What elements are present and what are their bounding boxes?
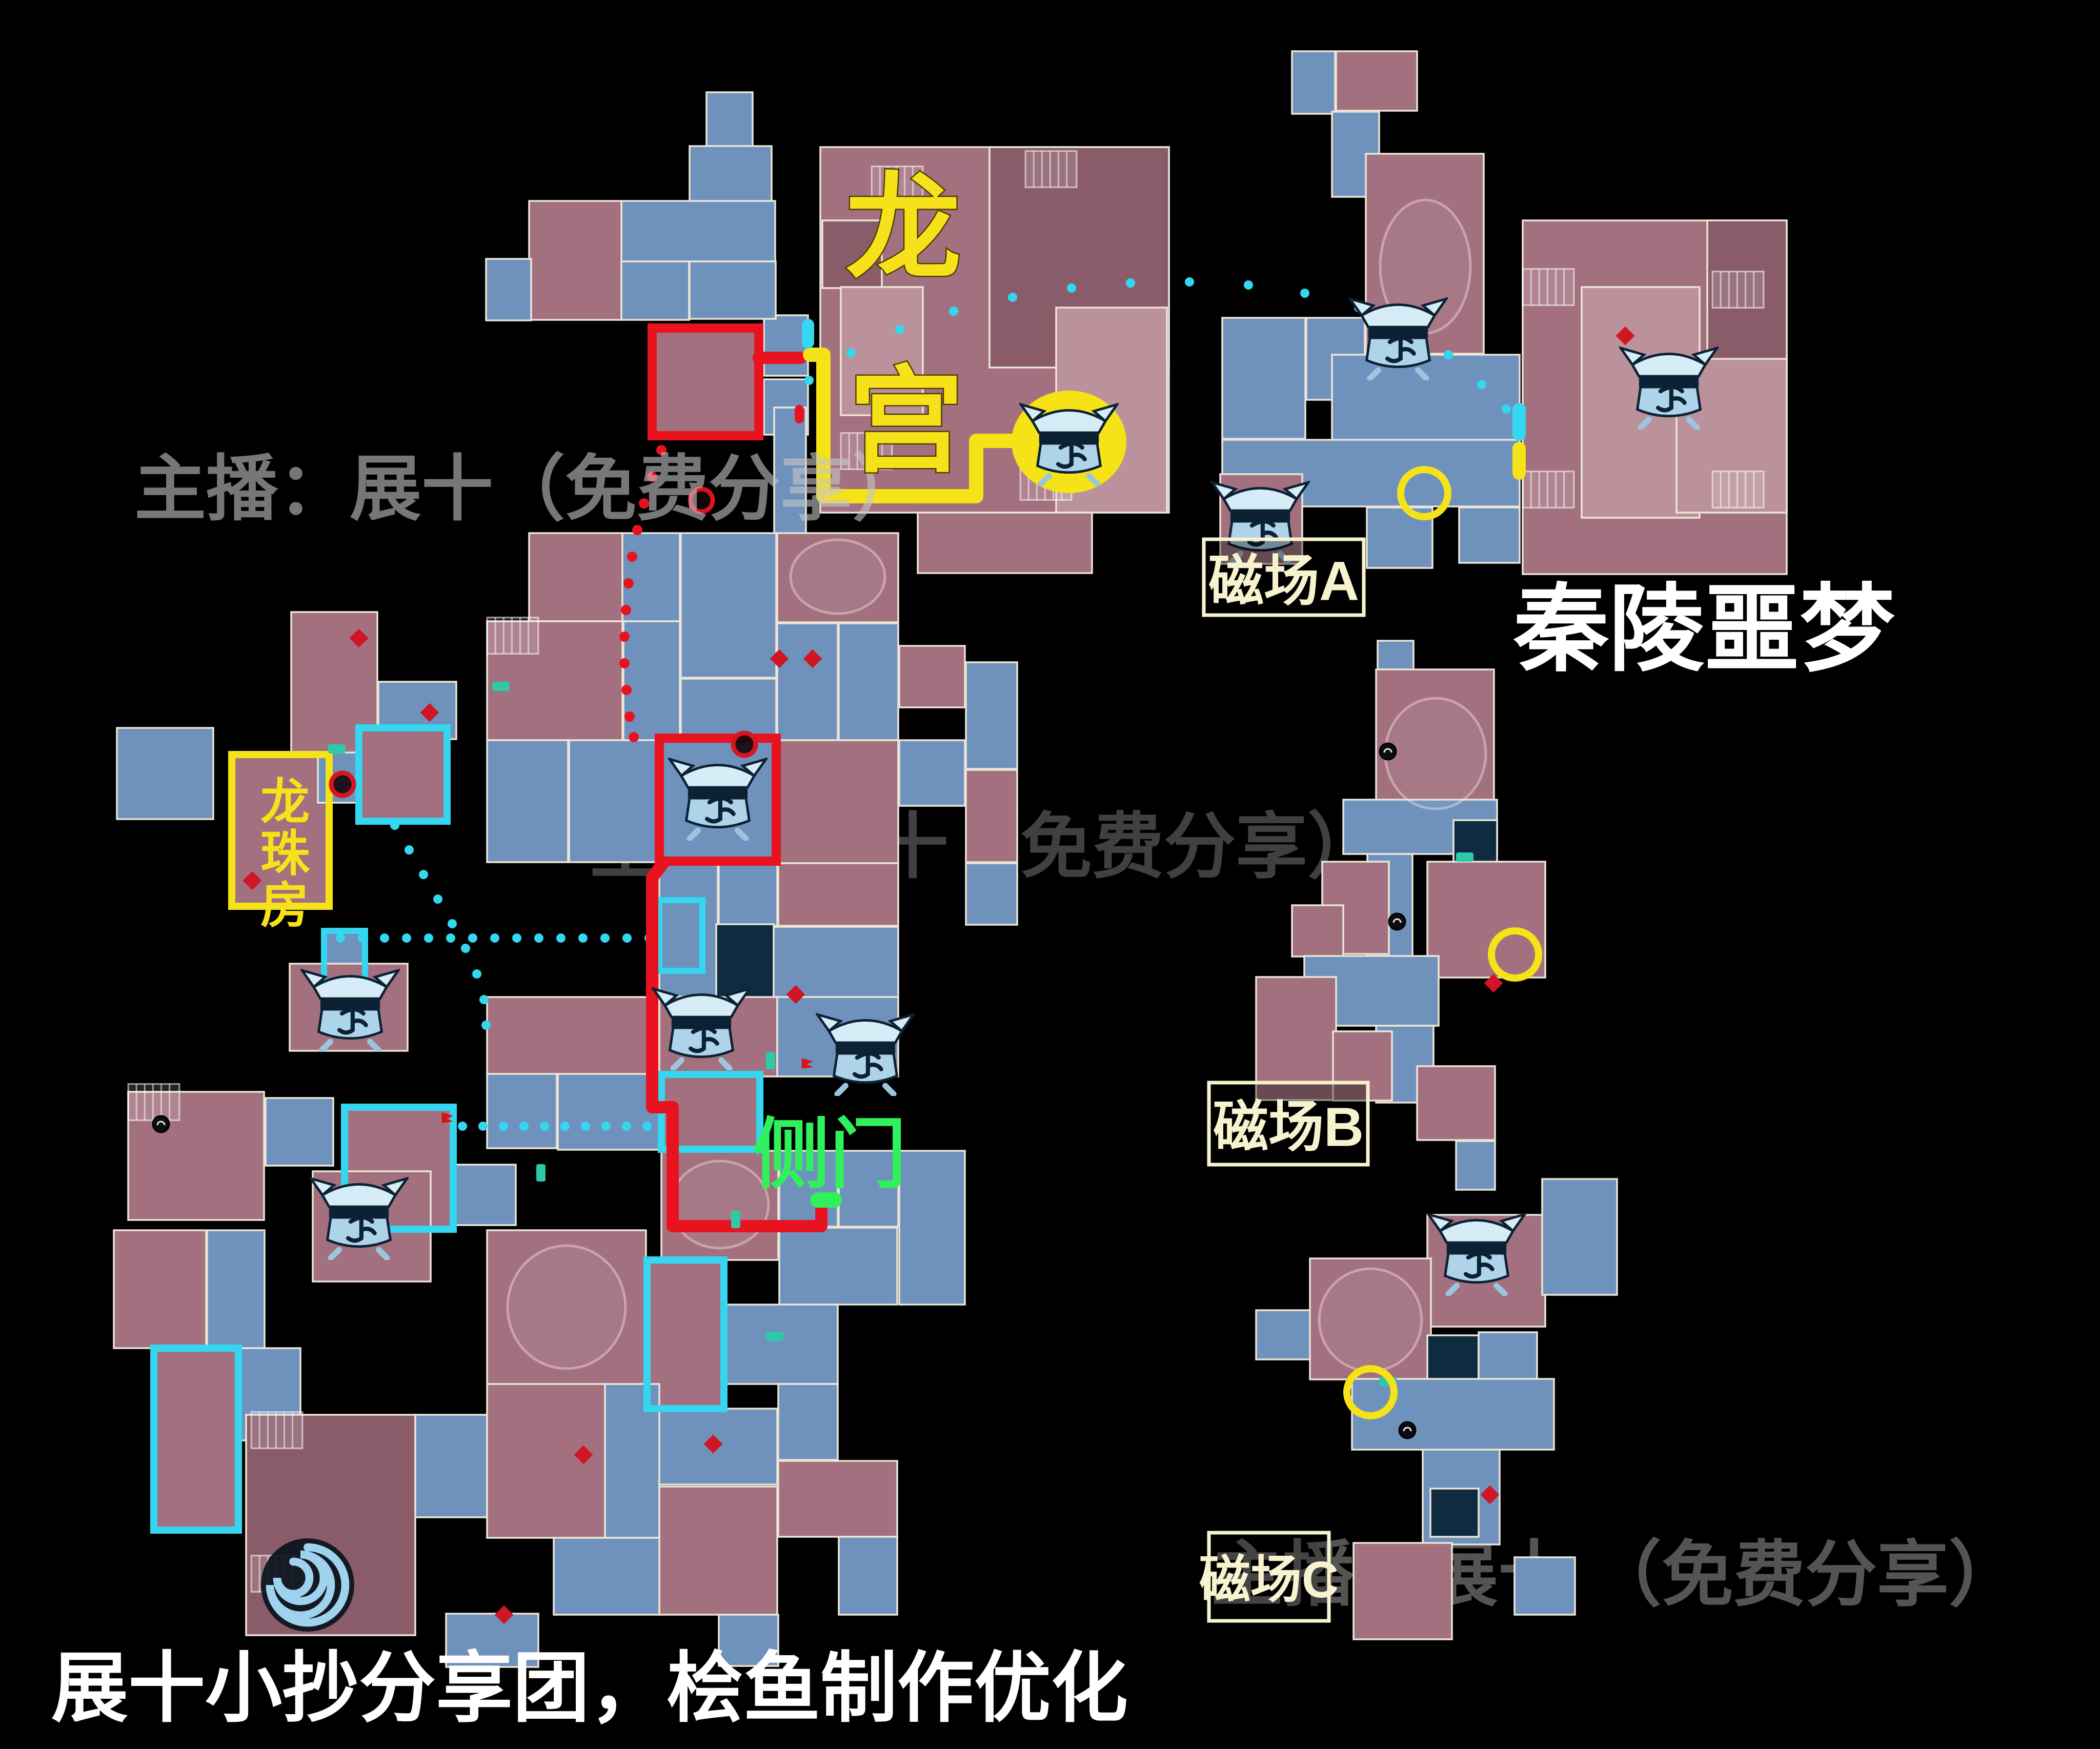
cyan-dotted-path-dot [581,1122,590,1131]
teal-door-chip [731,1211,740,1228]
map-room [486,259,531,320]
yellow-door-capsule [1512,442,1526,480]
map-room [1459,507,1520,563]
map-room [966,770,1017,862]
cyan-dotted-path-dot [419,870,428,879]
cyan-dotted-path-dot [468,933,477,943]
map-room [681,533,776,678]
map-room [1378,641,1414,669]
map-room [899,1151,965,1305]
field-c-text: 磁场C [1199,1551,1339,1609]
map-room [1427,1335,1479,1384]
cyan-dotted-path-dot [472,969,481,979]
map-room [778,863,898,926]
cyan-dotted-path-dot [519,1122,529,1131]
cyan-dotted-path-dot [380,933,389,943]
pearl-char-2: 珠 [260,827,310,882]
cyan-dotted-path-dot [1477,380,1486,389]
map-room [778,740,898,863]
cyan-dotted-path-dot [949,307,958,316]
map-room [778,1461,897,1537]
map-room [487,1384,605,1538]
red-dotted-path-dot [627,552,637,562]
cyan-dotted-path-dot [448,919,457,928]
map-room [681,679,776,740]
cyan-dotted-path-dot [601,1122,611,1131]
map-room [1222,318,1305,439]
red-dotted-path-dot [623,578,634,588]
stairs-glyph [1523,472,1574,508]
cyan-dotted-path-dot [642,1122,652,1131]
cyan-dotted-path-dot [461,944,470,953]
map-room [1292,905,1343,957]
side-door-label: 侧门 [753,1111,906,1197]
red-dotted-path-dot [629,732,639,742]
map-room [558,1074,660,1150]
teal-door-chip [328,744,346,754]
map-room [1515,1557,1575,1615]
map-room [966,863,1017,925]
plaza-circle-pattern [1319,1269,1422,1371]
map-room [839,1537,897,1615]
teal-door-chip [492,682,510,691]
cyan-dotted-path-dot [433,894,442,904]
map-room [621,201,775,261]
map-room [1542,1179,1617,1295]
pearl-char-3: 房 [260,879,310,933]
stairs-glyph [1712,472,1764,508]
map-room [1336,51,1417,111]
map-room [529,201,621,320]
cyan-dotted-path-dot [804,376,814,385]
red-ring-marker [733,733,756,756]
map-room [777,623,838,740]
map-room [487,740,568,862]
field-b-label: 磁场B [1209,1083,1368,1165]
map-room [621,261,689,320]
cyan-dotted-path-dot [424,933,433,943]
map-room [706,92,753,146]
dungeon-map-image: 主播：展十（免费分享） 主播：展十 （免费分享） 主播：展十（免费分享） 龙 宫… [0,0,2100,1749]
cyan-dotted-path-dot [1008,293,1017,302]
black-dome-icon [153,1116,169,1132]
map-room [719,863,777,926]
cyan-dotted-path-dot [458,1122,467,1131]
red-ring-marker [331,773,354,796]
stairs-glyph [251,1412,302,1449]
plaza-circle-pattern [508,1246,625,1369]
map-room [1430,1489,1479,1537]
red-dotted-path-dot [621,605,631,615]
cyan-dotted-path-dot [336,933,345,943]
cyan-dotted-path-dot [490,933,499,943]
map-room [1427,862,1545,978]
teal-door-chip [536,1164,546,1182]
map-room [778,1384,838,1460]
cyan-dotted-path-dot [600,933,610,943]
map-room [659,863,718,996]
map-room [1354,1543,1452,1639]
cyan-dotted-path-dot [1126,278,1135,288]
plaza-circle-pattern [791,540,885,614]
cyan-dotted-path-dot [534,933,543,943]
cyan-dotted-path-dot [560,1122,570,1131]
dragon-palace-char-2: 宫 [849,357,964,486]
black-dome-icon [1399,1422,1416,1438]
teal-door-chip [766,1332,783,1341]
map-room [454,1165,516,1225]
cyan-dotted-path-dot [1185,277,1194,287]
cyan-dotted-path-dot [1444,350,1453,359]
cyan-dotted-path-dot [405,845,414,855]
field-b-text: 磁场B [1213,1096,1364,1158]
stairs-glyph [1712,272,1764,308]
dragon-palace-char-1: 龙 [846,164,961,293]
cyan-dotted-path-dot [556,933,566,943]
watermark-top: 主播：展十（免费分享） [134,449,924,529]
cyan-dotted-path-dot [895,325,904,334]
pearl-char-1: 龙 [260,775,310,830]
cyan-dotted-path-dot [1067,283,1076,293]
cyan-dotted-path-dot [446,933,455,943]
cyan-dotted-path-dot [499,1122,508,1131]
map-room [659,1487,777,1615]
cyan-dotted-path-dot [478,1122,488,1131]
red-dotted-path-dot [624,711,635,722]
credit-caption: 展十小抄分享团，桧鱼制作优化 [51,1645,1128,1731]
cyan-dotted-path-dot [358,933,367,943]
cyan-dotted-path-dot [540,1122,549,1131]
cyan-dotted-path-dot [402,933,411,943]
red-dotted-path-dot [621,685,632,695]
cyan-dotted-path-dot [622,933,632,943]
field-c-label: 磁场C [1199,1533,1339,1621]
map-room [899,646,965,707]
map-room [899,740,965,806]
field-a-text: 磁场A [1208,550,1359,612]
map-room [623,621,680,740]
map-room [764,315,808,376]
cyan-dotted-path-dot [479,995,489,1004]
map-room [622,533,680,621]
cyan-dotted-path-dot [1300,289,1309,298]
cyan-dotted-path-dot [481,1021,491,1030]
whirlpool-icon [261,1538,354,1632]
red-dotted-path-dot [619,632,630,642]
map-room [529,533,622,621]
red-door-capsule [795,405,804,423]
map-room [779,1228,897,1305]
dragon-pearl-room-label: 龙 珠 房 [260,775,310,933]
map-room [726,1305,838,1384]
map-room [154,1348,238,1530]
plaza-circle-pattern [1385,698,1486,809]
stairs-glyph [1523,269,1574,306]
teal-door-chip [766,1052,775,1069]
black-dome-icon [1389,913,1405,930]
map-room [690,146,772,201]
map-room [415,1415,487,1517]
cyan-door-capsule [802,319,814,349]
stairs-glyph [487,618,538,654]
map-room [207,1230,265,1348]
cyan-dotted-path-dot [846,348,856,357]
map-title: 秦陵噩梦 [1513,577,1895,683]
map-room [690,261,776,319]
cyan-door-capsule [1512,403,1526,441]
cyan-dotted-path-dot [512,933,521,943]
red-dotted-path-dot [619,658,630,668]
map-room [839,623,898,740]
cyan-dotted-path-dot [622,1122,631,1131]
map-room [114,1230,206,1348]
map-room [554,1538,659,1615]
map-room [1456,1141,1495,1190]
black-dome-icon [1380,743,1396,760]
map-room [359,728,447,821]
cyan-dotted-path-dot [390,821,399,830]
map-room [652,328,759,436]
cyan-dotted-path-dot [1244,280,1253,290]
stairs-glyph [128,1084,179,1121]
map-room [1332,355,1520,443]
cyan-dotted-path-dot [578,933,588,943]
map-room [569,740,657,862]
map-room [918,513,1092,573]
map-room [966,662,1017,769]
cyan-dotted-path-dot [1502,404,1511,414]
map-room [266,1098,333,1166]
map-room [487,1074,557,1148]
field-a-label: 磁场A [1204,539,1364,615]
map-room [1417,1066,1495,1140]
stairs-glyph [1025,151,1077,188]
map-room [1292,51,1335,114]
teal-door-chip [1456,852,1473,862]
map-room [117,728,213,819]
map-room [487,997,659,1076]
